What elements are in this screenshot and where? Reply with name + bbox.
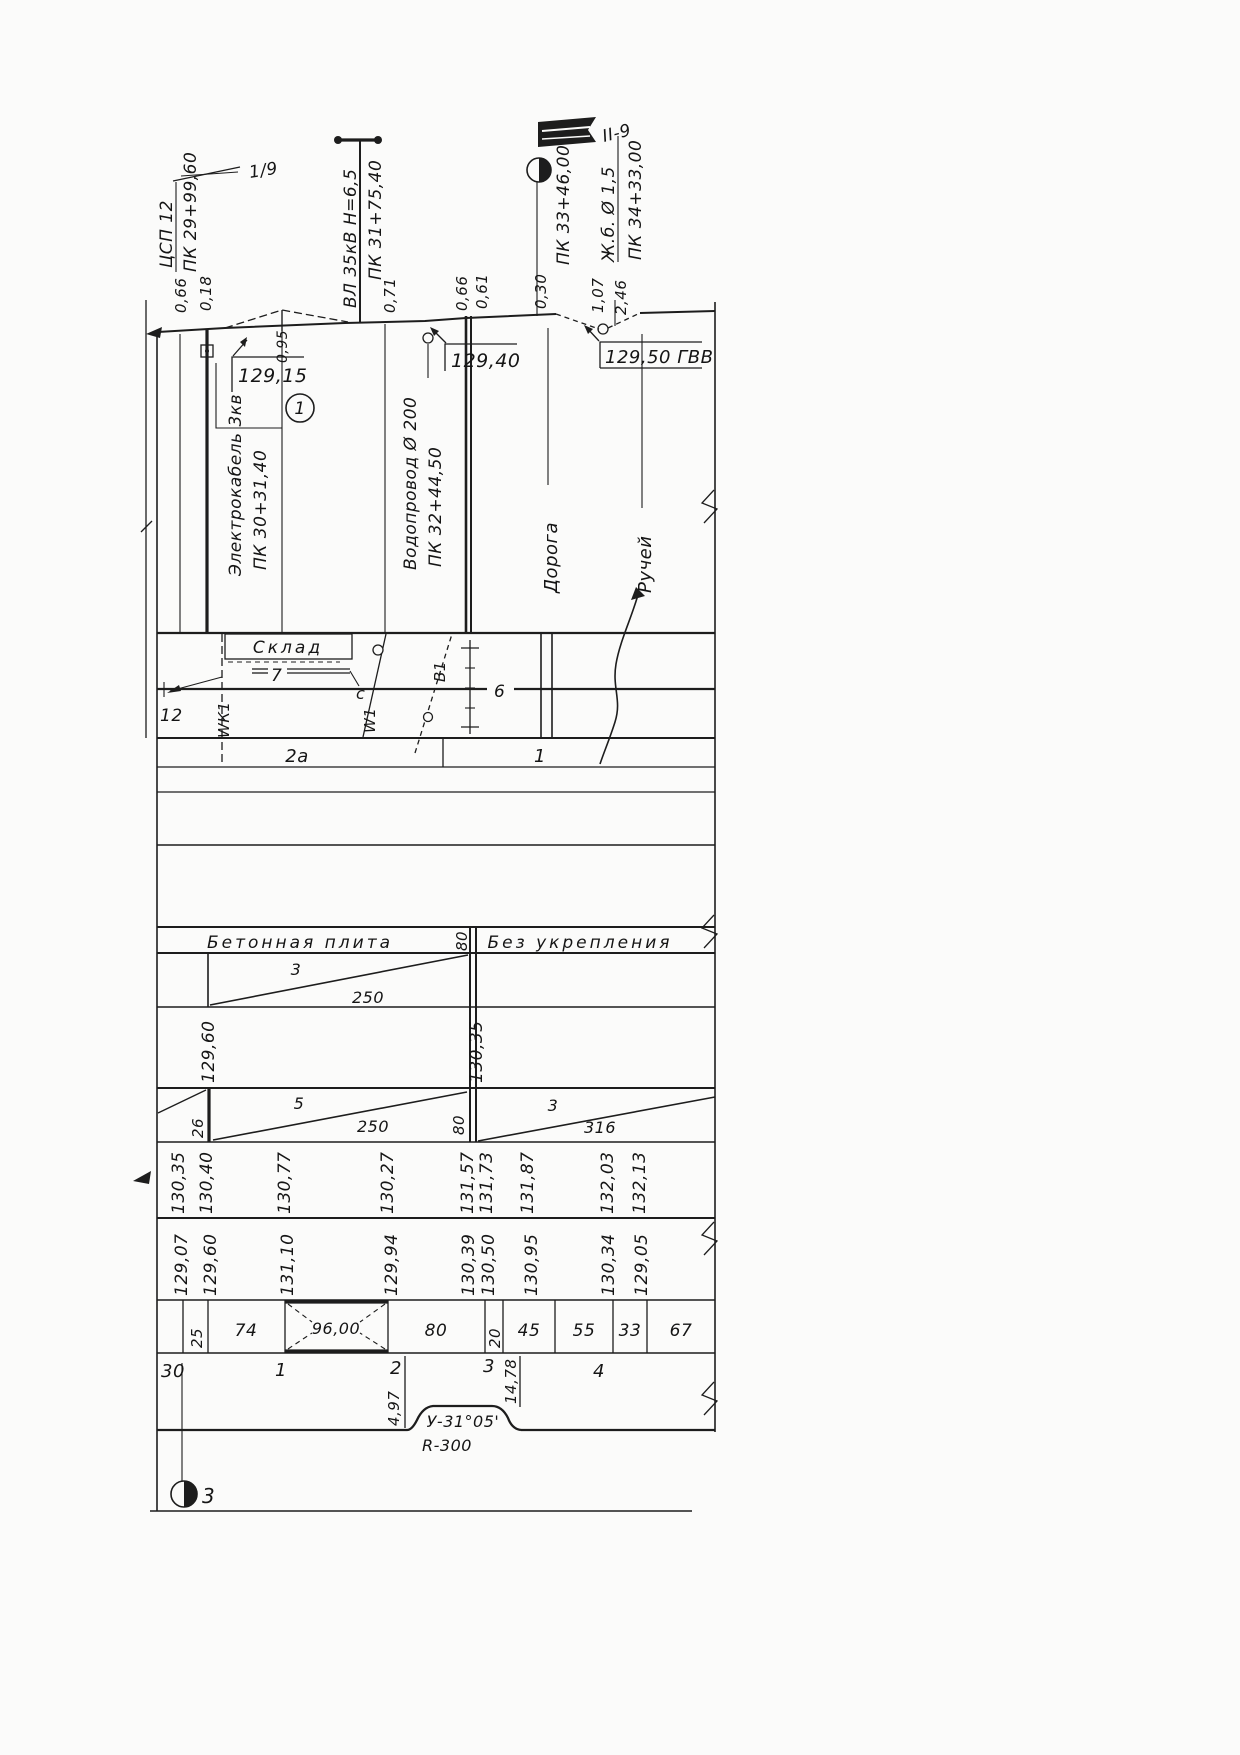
elevC-2: 131,10 — [278, 1234, 298, 1296]
elevB-2: 130,77 — [275, 1152, 295, 1214]
elevC-8: 129,05 — [632, 1234, 652, 1296]
csp-offset-1: 0,66 — [172, 278, 190, 313]
tangent-1: 4,97 — [385, 1391, 403, 1426]
ditch1-slope: 3 — [291, 960, 302, 979]
csp-station: ПК 29+99,60 — [181, 152, 201, 272]
stream-dip-circle — [598, 324, 608, 334]
elevB-8: 132,13 — [630, 1152, 650, 1214]
ditch2-len1: 250 — [357, 1117, 389, 1136]
bottom-marker — [171, 1363, 197, 1507]
tangent-2: 14,78 — [502, 1359, 520, 1404]
dist-4: 20 — [486, 1328, 504, 1348]
ditch-texts: 3 250 129,60 130,35 26 5 250 80 3 316 — [189, 960, 616, 1138]
elevA-0: 129,60 — [199, 1021, 219, 1083]
csp-offset-2: 0,18 — [197, 276, 215, 311]
elevC-5: 130,50 — [479, 1234, 499, 1296]
drawing-sheet: 1/9 ЦСП 12 ПК 29+99,60 0,66 0,18 ВЛ 35кВ… — [0, 0, 1240, 1755]
distance-texts: 25 74 96,00 80 20 45 55 33 67 — [188, 1319, 692, 1348]
elevB-4: 131,57 — [458, 1152, 478, 1214]
elev-129-15: 129,15 — [238, 365, 307, 387]
surface-left: Бетонная плита — [207, 933, 393, 953]
plan-texts: Склад 7 с 6 12 WК1 W1 В1 2а 1 — [160, 638, 546, 767]
elevA-1: 130,35 — [467, 1021, 487, 1083]
b1-line — [415, 634, 452, 753]
line7-label: 7 — [271, 666, 282, 686]
elevB-5: 131,73 — [477, 1152, 497, 1214]
stream-offset-1: 1,07 — [589, 278, 607, 313]
ordinate-texts: Электрокабель 3кв ПК 30+31,40 Водопровод… — [226, 394, 656, 594]
w1-label: W1 — [361, 708, 379, 733]
sta-0: 30 — [161, 1361, 185, 1382]
elevB-1: 130,40 — [197, 1152, 217, 1214]
elev-row-arrow — [133, 1171, 151, 1184]
elevC-6: 130,95 — [522, 1234, 542, 1296]
sta-3: 3 — [483, 1356, 495, 1377]
road-offset: 0,30 — [532, 274, 550, 309]
elevB-0: 130,35 — [169, 1152, 189, 1214]
dist-7: 33 — [619, 1321, 642, 1341]
dist-5: 45 — [518, 1321, 541, 1341]
cable-station: ПК 30+31,40 — [251, 450, 271, 570]
zone-right: 1 — [534, 746, 546, 767]
ditch2-len2: 316 — [584, 1118, 616, 1137]
road-label: Дорога — [541, 522, 562, 594]
elevC-3: 129,94 — [382, 1234, 402, 1296]
dist-0: 25 — [188, 1328, 206, 1348]
ditch2-slope2: 3 — [548, 1096, 559, 1115]
dist-3: 80 — [425, 1321, 448, 1341]
ditch2-slope1: 5 — [294, 1094, 305, 1113]
surface-row-texts: Бетонная плита 80 Без укрепления — [207, 931, 673, 953]
ditch-row-2 — [158, 1088, 715, 1142]
ditch2-v1: 26 — [189, 1118, 207, 1138]
elev-gvv: 129,50 ГВВ — [605, 347, 713, 368]
left-number: 12 — [160, 706, 183, 726]
elevC-4: 130,39 — [459, 1234, 479, 1296]
top-annotation-texts: 1/9 ЦСП 12 ПК 29+99,60 0,66 0,18 ВЛ 35кВ… — [157, 120, 646, 315]
note-circle-text: 1 — [294, 399, 305, 419]
curve-radius: R-300 — [422, 1436, 472, 1455]
mound-height: 0,95 — [275, 330, 291, 363]
water-crossing-ladder — [461, 640, 479, 734]
stream-label: Ручей — [635, 536, 656, 593]
culvert-label: Ж.б. Ø 1,5 — [599, 166, 619, 263]
elev-129-40: 129,40 — [451, 350, 520, 372]
powerline-station: ПК 31+75,40 — [366, 160, 386, 280]
culvert-station: ПК 34+33,00 — [626, 140, 646, 260]
wk1-label: WК1 — [215, 701, 233, 738]
station-texts: 30 1 2 3 4 4,97 14,78 У-31°05' R-300 3 — [161, 1356, 605, 1508]
powerline-offset: 0,71 — [381, 278, 399, 313]
ditch2-v2: 80 — [450, 1115, 468, 1135]
elevC-0: 129,07 — [172, 1234, 192, 1296]
flag-ii9-symbol — [538, 117, 596, 147]
csp-label: ЦСП 12 — [157, 200, 177, 268]
bottom-marker-label: 3 — [202, 1484, 215, 1508]
pk33-station: ПК 33+46,00 — [554, 145, 574, 265]
b1-label: В1 — [431, 661, 449, 682]
flag-left-label: 1/9 — [248, 159, 280, 183]
sklad-label: Склад — [253, 638, 323, 658]
dist-1: 74 — [235, 1321, 258, 1341]
axis-number: 6 — [494, 682, 505, 702]
elevation-row-b: 130,35 130,40 130,77 130,27 131,57 131,7… — [169, 1152, 650, 1214]
elevB-7: 132,03 — [598, 1152, 618, 1214]
sta-2: 2 — [390, 1358, 402, 1379]
water-station: ПК 32+44,50 — [426, 447, 446, 567]
powerline-label: ВЛ 35кВ Н=6,5 — [341, 169, 361, 308]
curve-angle: У-31°05' — [427, 1412, 500, 1431]
elevC-1: 129,60 — [201, 1234, 221, 1296]
elevB-6: 131,87 — [518, 1152, 538, 1214]
sta-4: 4 — [593, 1361, 605, 1382]
elevation-row-c: 129,07 129,60 131,10 129,94 130,39 130,5… — [172, 1234, 652, 1296]
water-label: Водопровод Ø 200 — [401, 397, 421, 570]
surface-mid: 80 — [453, 931, 471, 951]
line7-end-label: с — [356, 684, 365, 703]
ditch-row-1 — [208, 953, 468, 1007]
cable-label: Электрокабель 3кв — [226, 394, 246, 577]
elevC-7: 130,34 — [599, 1234, 619, 1296]
water-offset-2: 0,61 — [473, 274, 491, 309]
profile-drawing: 1/9 ЦСП 12 ПК 29+99,60 0,66 0,18 ВЛ 35кВ… — [0, 0, 1240, 1755]
water-offset-1: 0,66 — [453, 276, 471, 311]
ditch1-length: 250 — [352, 988, 384, 1007]
sta-1: 1 — [275, 1360, 287, 1381]
dist-6: 55 — [573, 1321, 596, 1341]
dist-8: 67 — [670, 1321, 693, 1341]
stream-offset-2: 2,46 — [612, 280, 630, 315]
zone-left: 2а — [285, 746, 308, 767]
elevB-3: 130,27 — [378, 1152, 398, 1214]
dist-2: 96,00 — [312, 1319, 360, 1338]
surface-right: Без укрепления — [488, 933, 673, 953]
